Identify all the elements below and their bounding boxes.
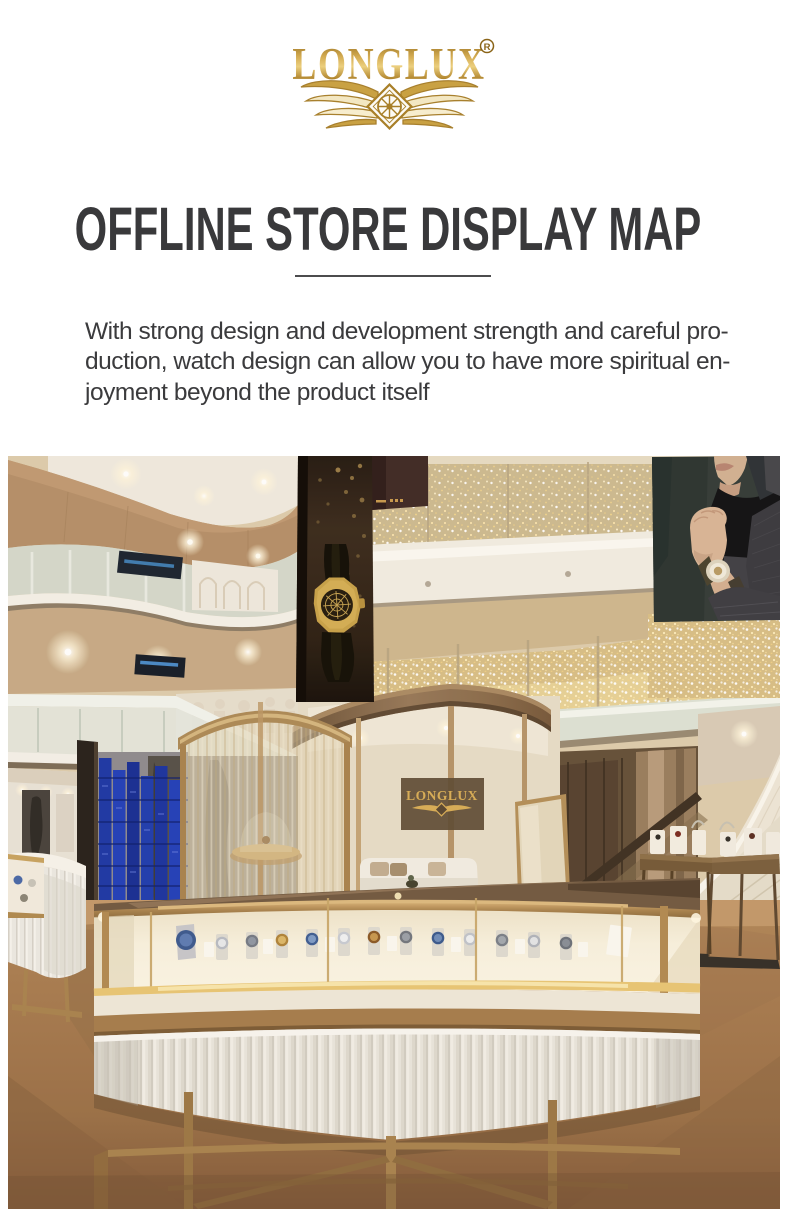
svg-text:R: R <box>484 42 491 53</box>
